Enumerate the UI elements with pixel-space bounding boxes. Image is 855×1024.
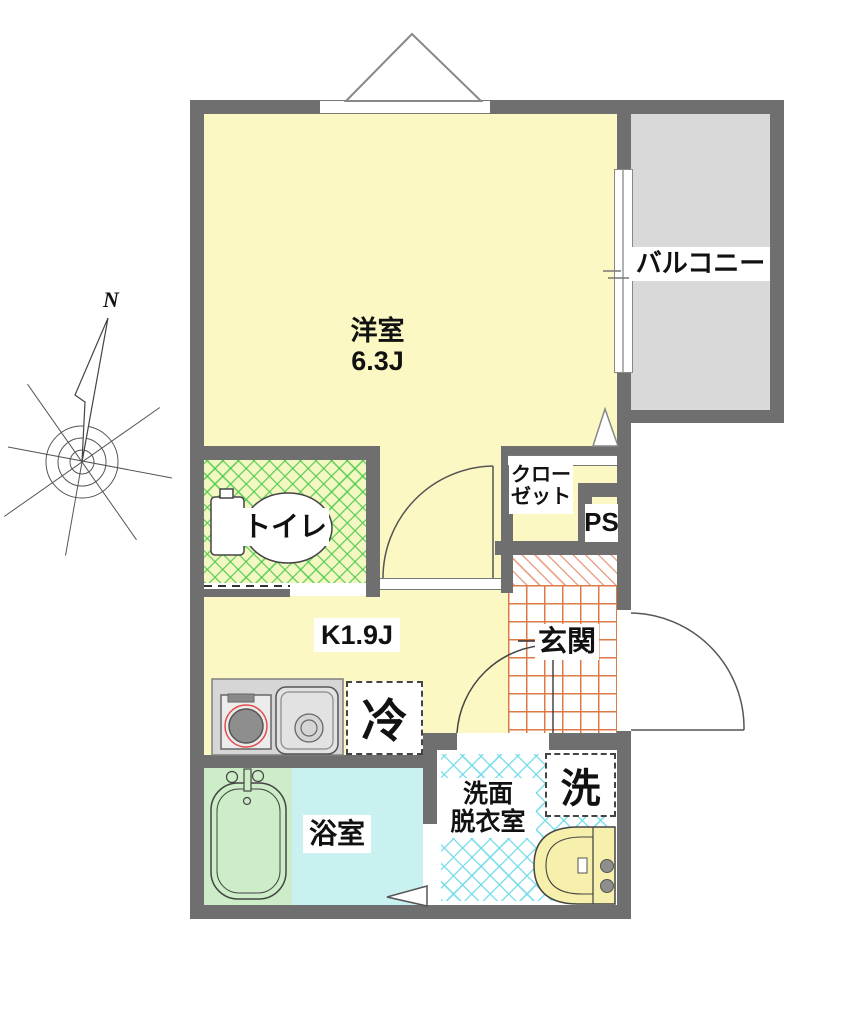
washing-machine-label: 洗 [561,756,601,814]
bathtub-icon [211,783,286,899]
bathroom-name: 浴室 [309,818,365,849]
washroom-name-line1: 洗面 [463,780,513,808]
plan-linework [0,0,855,1024]
entrance-name: 玄関 [538,626,596,658]
toilet-label: トイレ [241,508,329,546]
washing-machine-box: 洗 [545,753,616,817]
bath-faucet-stem [244,769,251,791]
bathroom-label: 浴室 [303,815,371,853]
room-door-arc [383,466,493,578]
washbasin-knob-bottom [601,880,614,893]
entrance-label: 玄関 [535,624,599,660]
bath-faucet-knob-left [227,772,238,783]
pipe-space-name: PS [584,508,619,537]
sink-drain-icon [295,714,323,742]
washbasin-slot [578,858,587,873]
closet-name-line2: ゼット [511,486,571,508]
toilet-tank-icon [211,497,244,555]
floor-plan: 冷 洗 洋室 6.3J バルコニー トイレ クロー ゼット PS K1.9J 玄… [0,0,855,1024]
bath-door-triangle-icon [387,886,427,906]
top-window-triangle-icon [346,34,481,101]
front-door-arc [631,613,744,730]
balcony-name: バルコニー [636,249,765,278]
washroom-name-line2: 脱衣室 [450,808,525,836]
closet-name-line1: クロー [511,464,571,486]
toilet-name: トイレ [243,511,327,542]
washbasin-knob-top [601,860,614,873]
western-room-size: 6.3J [351,346,404,376]
compass-north-letter: N [103,288,119,313]
bath-faucet-knob-right [253,771,264,782]
balcony-label: バルコニー [631,247,770,281]
closet-door-triangle-icon [593,409,618,446]
toilet-button-icon [220,489,233,498]
western-room-name: 洋室 [351,316,405,346]
compass-north-label: N [96,286,126,314]
kitchen-label: K1.9J [314,618,400,652]
stove-handle-icon [228,694,254,702]
western-room-label: 洋室 6.3J [320,315,435,377]
washroom-label: 洗面 脱衣室 [440,778,536,838]
refrigerator-box: 冷 [346,681,423,755]
bath-drain-icon [244,798,251,805]
closet-label: クロー ゼット [509,458,573,514]
compass-rose [4,318,172,556]
refrigerator-label: 冷 [362,685,408,751]
stove-burner-icon [229,709,263,743]
pipe-space-label: PS [585,504,618,542]
kitchen-name: K1.9J [321,620,393,650]
